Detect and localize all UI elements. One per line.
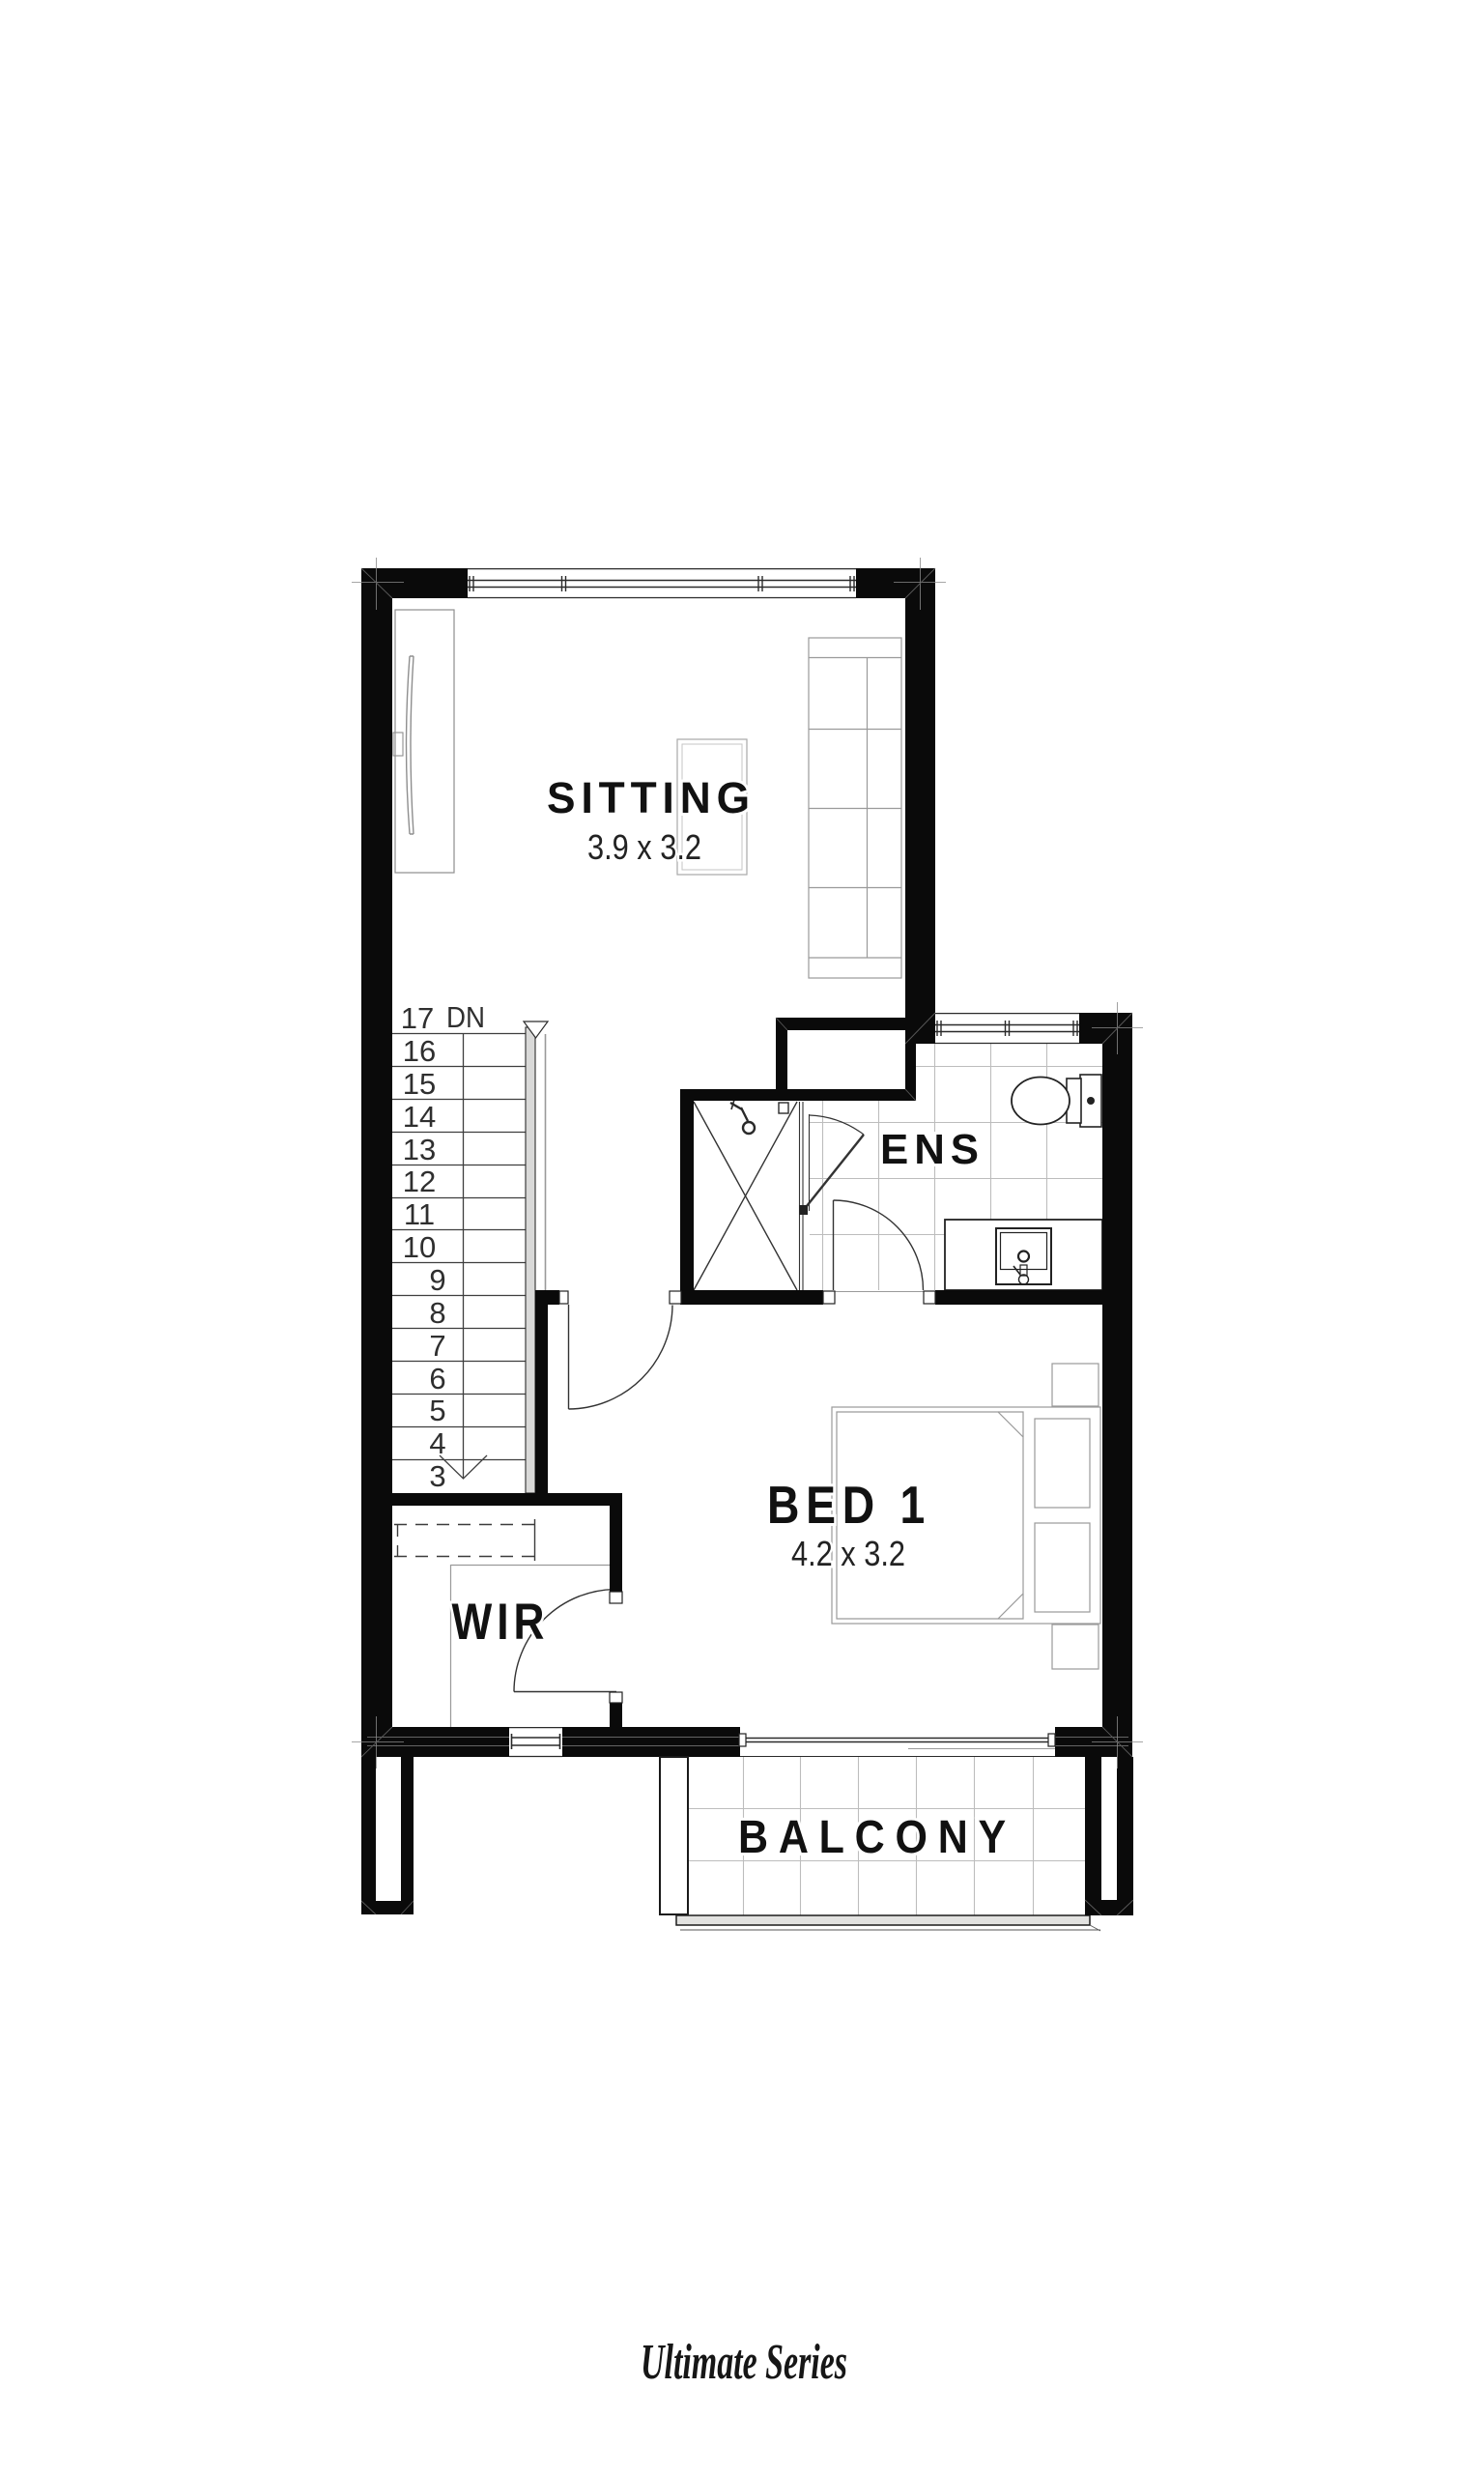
svg-text:14: 14 xyxy=(403,1100,436,1134)
svg-text:7: 7 xyxy=(429,1329,445,1363)
svg-text:WIR: WIR xyxy=(452,1594,550,1651)
svg-text:8: 8 xyxy=(429,1296,445,1330)
svg-text:6: 6 xyxy=(429,1362,445,1395)
svg-text:SITTING: SITTING xyxy=(547,773,756,822)
svg-text:ENS: ENS xyxy=(880,1126,985,1173)
svg-text:4.2 x 3.2: 4.2 x 3.2 xyxy=(791,1534,905,1573)
svg-text:9: 9 xyxy=(429,1263,445,1297)
svg-text:Ultimate Series: Ultimate Series xyxy=(641,2335,847,2390)
svg-text:5: 5 xyxy=(429,1394,445,1427)
svg-text:4: 4 xyxy=(429,1426,445,1460)
svg-text:15: 15 xyxy=(403,1067,436,1101)
svg-text:11: 11 xyxy=(404,1197,435,1231)
svg-text:16: 16 xyxy=(403,1034,436,1068)
svg-text:17: 17 xyxy=(401,1001,434,1035)
svg-text:BED 1: BED 1 xyxy=(767,1475,931,1535)
svg-text:13: 13 xyxy=(403,1133,436,1166)
svg-text:DN: DN xyxy=(446,1000,485,1034)
svg-text:10: 10 xyxy=(403,1230,436,1264)
svg-text:3.9 x 3.2: 3.9 x 3.2 xyxy=(587,827,701,867)
svg-text:12: 12 xyxy=(403,1165,436,1198)
svg-text:BALCONY: BALCONY xyxy=(738,1812,1016,1863)
svg-text:3: 3 xyxy=(429,1459,445,1493)
